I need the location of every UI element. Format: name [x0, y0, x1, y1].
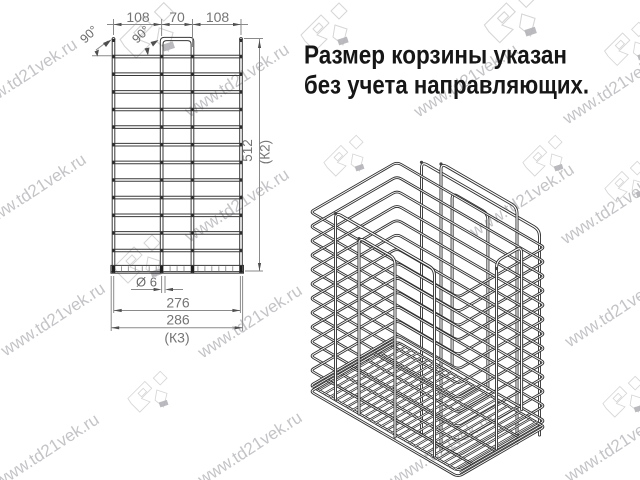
- svg-text:www.td21vek.ru: www.td21vek.ru: [0, 279, 108, 361]
- svg-text:www.td21vek.ru: www.td21vek.ru: [194, 281, 306, 363]
- svg-text:108: 108: [126, 9, 150, 25]
- svg-text:108: 108: [206, 9, 230, 25]
- svg-text:90°: 90°: [77, 23, 100, 46]
- svg-text:www.td21vek.ru: www.td21vek.ru: [0, 150, 89, 232]
- svg-text:Размер корзины указан: Размер корзины указан: [304, 39, 567, 69]
- svg-text:512: 512: [240, 139, 255, 162]
- svg-text:www.td21vek.ru: www.td21vek.ru: [561, 405, 640, 480]
- svg-text:без учета направляющих.: без учета направляющих.: [304, 70, 589, 100]
- svg-text:276: 276: [166, 295, 190, 311]
- svg-text:www.td21vek.ru: www.td21vek.ru: [0, 410, 102, 480]
- svg-text:www.td21vek.ru: www.td21vek.ru: [0, 35, 80, 117]
- svg-text:(К3): (К3): [164, 330, 189, 346]
- svg-text:(К2): (К2): [258, 140, 273, 164]
- svg-text:286: 286: [166, 312, 190, 328]
- svg-text:www.td21vek.ru: www.td21vek.ru: [181, 40, 293, 122]
- svg-text:70: 70: [169, 9, 185, 25]
- svg-text:Ø 6: Ø 6: [136, 275, 157, 290]
- svg-text:www.td21vek.ru: www.td21vek.ru: [194, 408, 306, 480]
- svg-text:www.td21vek.ru: www.td21vek.ru: [561, 270, 640, 352]
